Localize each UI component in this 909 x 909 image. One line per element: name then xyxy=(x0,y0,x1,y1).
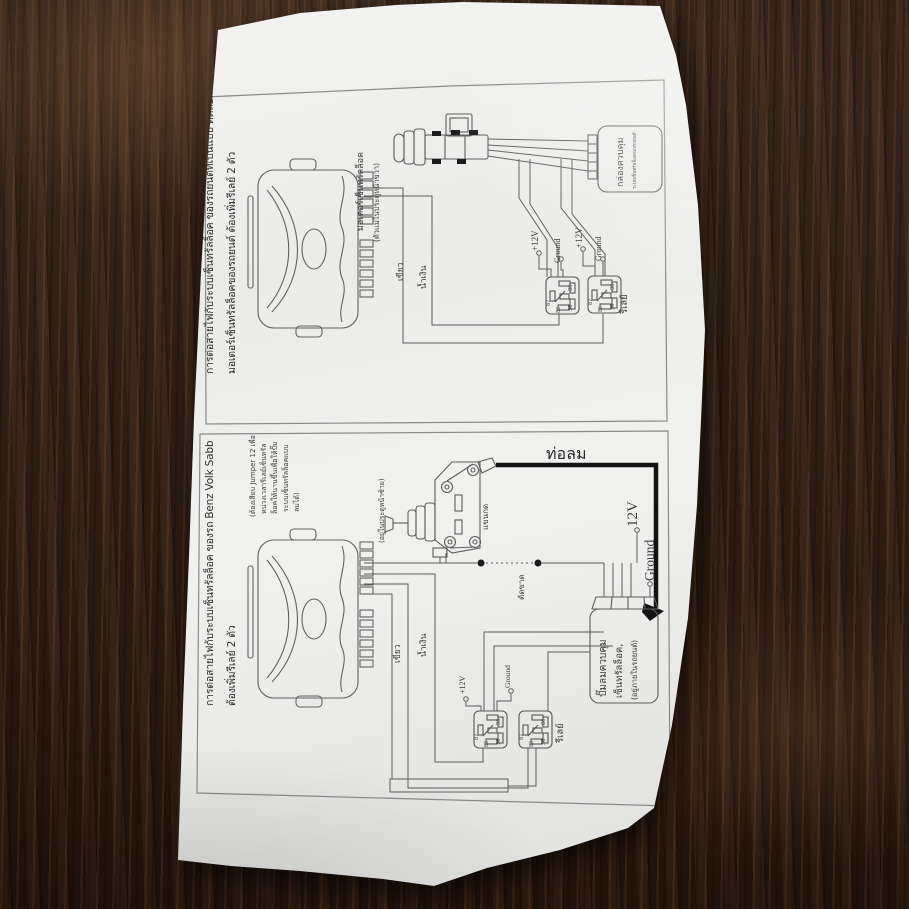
relay-pin-87: 87 xyxy=(475,734,480,740)
relay-pin-87: 87 xyxy=(547,300,552,306)
panel1-motor-label-line2: (ตัวแม่ในประตูหน้าขวา) xyxy=(373,163,381,242)
panel2-title-line1: การต่อสายไฟกับระบบเซ็นทรัลล็อค ของรถ Ben… xyxy=(205,441,216,706)
panel2-pump-label-line1: ปั๊มลมควบคุม xyxy=(599,639,609,697)
panel2-door-location-label: (อยู่ในประตูหน้าซ้าย) xyxy=(379,478,386,543)
relay-pin-86: 86 xyxy=(542,719,547,725)
panel2-relay1-12v-label: +12V xyxy=(459,676,467,694)
panel2-wire-blue-label: น้ำเงิน xyxy=(420,634,429,657)
relay-pin-87: 87 xyxy=(589,299,594,305)
panel2-drawing xyxy=(248,458,664,792)
panel2-relay-label: รีเลย์ xyxy=(556,723,566,743)
panel2-pump-label-line2: เซ็นทรัลล็อค, xyxy=(615,644,625,698)
panel2-note-line3: ล็อคให้นานขึ้นเพื่อให้ปั๊ม xyxy=(272,441,279,514)
panel1-wire-green-label: เขียว xyxy=(397,263,406,281)
panel2-cut-label: ตัดขาด xyxy=(518,574,526,600)
relay-pin-86: 86 xyxy=(569,285,574,291)
panel1-control-box-label: กล่องควบคุม xyxy=(617,137,626,187)
panel2-pump-label-line3: (อยู่ภายในรถยนต์) xyxy=(631,640,639,700)
panel1-relay1-ground-label: Ground xyxy=(554,239,562,263)
relay-pin-86: 86 xyxy=(497,719,502,725)
panel2-note-line1: (ต้องเสียบ Jumper 12 เพื่อ xyxy=(250,435,257,517)
panel1-relay1-12v-label: +12V xyxy=(531,230,540,251)
photo-of-wiring-diagram-sheet: { "panel1": { "title_line1": "การต่อสายไ… xyxy=(0,0,909,909)
panel1-control-box-sublabel: ระบบเซ็นทรัลล็อคของรถยนต์ xyxy=(634,132,639,189)
panel2-wire-green-label: เขียว xyxy=(394,645,403,663)
relay-pin-30: 30 xyxy=(611,304,616,310)
panel2-air-hose-label: ท่อลม xyxy=(546,446,587,462)
printed-content: การต่อสายไฟกับระบบเซ็นทรัลล็อค ของรถยนต์… xyxy=(0,0,909,909)
panel1-title-line1: การต่อสายไฟกับระบบเซ็นทรัลล็อค ของรถยนต์… xyxy=(205,92,216,374)
panel2-arm-label: แขนกด xyxy=(482,504,490,530)
relay-pin-30: 30 xyxy=(569,305,574,311)
panel2-ground-terminal-label: Ground xyxy=(643,540,657,581)
paper-sheet-wrapper: การต่อสายไฟกับระบบเซ็นทรัลล็อค ของรถยนต์… xyxy=(0,0,909,909)
panel2-note-line2: หน่วงเวลารีเลย์เซ็นทรัล xyxy=(261,444,268,514)
panel1-motor-label-line1: มอเตอร์เซ็นทรัลล็อค xyxy=(357,152,366,231)
panel1-wire-blue-label: น้ำเงิน xyxy=(420,266,429,289)
paper-sheet: การต่อสายไฟกับระบบเซ็นทรัลล็อค ของรถยนต์… xyxy=(0,0,909,909)
panel1-relay2-ground-label: Ground xyxy=(595,237,603,261)
relay-pin-85: 85 xyxy=(557,307,562,313)
panel2-title-line2: ต้องเพิ่มรีเลย์ 2 ตัว xyxy=(227,625,238,706)
panel1-relay2-12v-label: +12V xyxy=(575,227,584,248)
relay-pin-85: 85 xyxy=(485,741,490,747)
panel2-relay1-ground-label: Ground xyxy=(504,665,512,688)
panel1-relay-label: รีเลย์ xyxy=(620,294,630,314)
relay-pin-85: 85 xyxy=(530,741,535,747)
relay-pin-87: 87 xyxy=(520,734,525,740)
panel2-12v-terminal-label: 12V xyxy=(626,501,641,527)
diagram-line-art xyxy=(0,0,909,909)
relay-pin-85: 85 xyxy=(599,306,604,312)
panel2-note-line4: ระบบเซ็นทรัลล็อคแบบ xyxy=(283,444,290,512)
panel1-title-line2: มอเตอร์เซ็นทรัลล็อคของรถยนต์ ต้องเพิ่มรี… xyxy=(227,152,238,374)
panel2-note-line5: ลมได้) xyxy=(294,492,301,512)
relay-pin-30: 30 xyxy=(542,739,547,745)
relay-pin-30: 30 xyxy=(497,739,502,745)
hose-connector-wedge xyxy=(642,603,664,621)
relay-pin-86: 86 xyxy=(611,284,616,290)
